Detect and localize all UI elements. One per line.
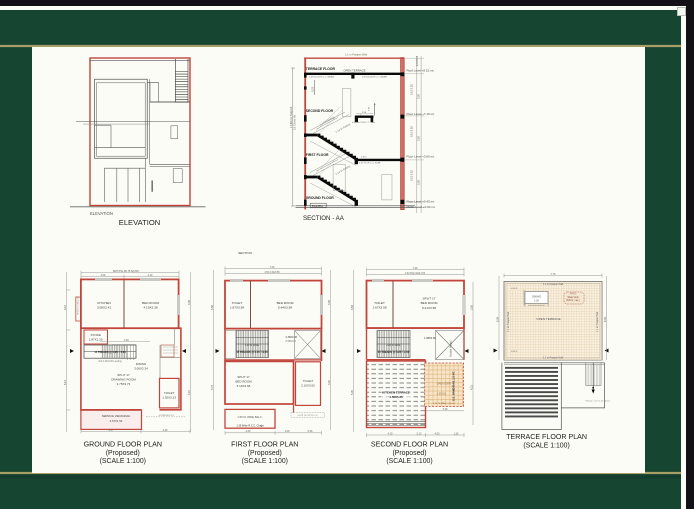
svg-text:SERVICE VERANDAH: SERVICE VERANDAH: [102, 414, 131, 418]
svg-text:1.14 M Railing: 1.14 M Railing: [335, 164, 352, 176]
svg-text:17.88 mt. Total Ht.: 17.88 mt. Total Ht.: [289, 106, 293, 128]
svg-text:4.19X3.38: 4.19X3.38: [143, 306, 157, 310]
svg-text:BED ROOM: BED ROOM: [142, 301, 159, 305]
svg-text:Floor Level +0.45 mt.: Floor Level +0.45 mt.: [407, 199, 435, 203]
svg-text:(Proposed): (Proposed): [392, 450, 426, 457]
svg-text:1.20: 1.20: [534, 299, 539, 302]
svg-text:1.1 m Parapet Wall: 1.1 m Parapet Wall: [543, 283, 564, 286]
svg-text:4.20: 4.20: [246, 430, 251, 433]
svg-text:(SCALE 1:100): (SCALE 1:100): [242, 458, 288, 465]
svg-text:3.38: 3.38: [188, 300, 191, 305]
svg-text:Water tank: Water tank: [567, 296, 579, 299]
svg-text:ELEVATION: ELEVATION: [119, 218, 161, 227]
svg-text:SITOUT 2.44x1.20: SITOUT 2.44x1.20: [78, 296, 80, 315]
svg-text:(Proposed): (Proposed): [248, 450, 282, 457]
svg-text:3.28: 3.28: [443, 408, 448, 411]
svg-text:1.14 M Railing: 1.14 M Railing: [319, 115, 336, 127]
svg-text:S.S. HAND RAIL 1.0 HT.: S.S. HAND RAIL 1.0 HT.: [452, 371, 456, 401]
svg-text:1.35 Wide R.C.C. Chajja: 1.35 Wide R.C.C. Chajja: [236, 425, 264, 428]
svg-text:SWHS: SWHS: [532, 294, 541, 298]
svg-text:1.87X3.58: 1.87X3.58: [230, 306, 244, 310]
svg-text:5.44X3.58: 5.44X3.58: [278, 306, 292, 310]
svg-text:TOILET: TOILET: [164, 391, 175, 395]
svg-text:GROUND FLOOR: GROUND FLOOR: [306, 196, 334, 200]
svg-text:FIRST FLOOR: FIRST FLOOR: [306, 153, 329, 157]
svg-text:3.75X3.73: 3.75X3.73: [117, 382, 131, 386]
svg-text:3.58: 3.58: [351, 305, 354, 310]
svg-text:4.19: 4.19: [148, 274, 153, 277]
svg-text:BED ROOM: BED ROOM: [277, 301, 294, 305]
svg-text:OPEN TERRACE: OPEN TERRACE: [344, 69, 366, 73]
svg-text:Roof Level +8.51 mt.: Roof Level +8.51 mt.: [407, 68, 435, 72]
svg-text:0.075 TK. UPTO 1.0: 0.075 TK. UPTO 1.0: [298, 415, 319, 417]
svg-text:3.08X2.41: 3.08X2.41: [97, 306, 111, 310]
svg-text:2.38X0.68: 2.38X0.68: [286, 336, 298, 339]
svg-text:GROUND FLOOR PLAN: GROUND FLOOR PLAN: [84, 440, 162, 448]
svg-text:4.19: 4.19: [388, 432, 393, 435]
svg-text:0.30 X: 0.30 X: [511, 351, 518, 353]
svg-text:1.08: 1.08: [285, 430, 290, 433]
svg-text:SECTION: SECTION: [238, 251, 252, 255]
svg-text:TOILET: TOILET: [374, 301, 385, 305]
svg-text:(Proposed): (Proposed): [106, 450, 140, 457]
svg-text:0.15 3.35: 0.15 3.35: [410, 84, 414, 95]
svg-text:3.00X2.34: 3.00X2.34: [134, 367, 148, 371]
svg-text:Plinth Level +0.00 mt.: Plinth Level +0.00 mt.: [407, 205, 436, 209]
svg-text:1.38X0.68: 1.38X0.68: [424, 336, 436, 340]
svg-text:8.34: 8.34: [496, 317, 499, 322]
svg-text:0.30 X: 0.30 X: [511, 288, 518, 290]
svg-text:3.08: 3.08: [101, 274, 106, 277]
svg-text:1.67X3.58: 1.67X3.58: [372, 306, 386, 310]
svg-text:7.26: 7.26: [270, 266, 275, 269]
svg-text:(SCALE 1:100): (SCALE 1:100): [523, 443, 569, 450]
svg-text:5.16X3.58: 5.16X3.58: [237, 384, 251, 388]
svg-text:3.58: 3.58: [328, 300, 331, 305]
svg-text:FIRST FLOOR PLAN: FIRST FLOOR PLAN: [231, 440, 298, 448]
svg-text:SECOND FLOOR PLAN: SECOND FLOOR PLAN: [371, 440, 448, 448]
svg-text:4.50: 4.50: [435, 432, 440, 435]
svg-text:0.23: 0.23: [310, 86, 314, 92]
svg-text:(SCALE 1:100): (SCALE 1:100): [100, 458, 146, 465]
svg-text:0.90: 0.90: [368, 106, 370, 111]
svg-text:TERRACE FLOOR: TERRACE FLOOR: [306, 67, 336, 71]
svg-text:4.50X5.35: 4.50X5.35: [389, 395, 403, 399]
svg-text:0.075: 0.075: [361, 156, 367, 158]
svg-text:SECTION - AA: SECTION - AA: [303, 215, 345, 222]
svg-text:4.31: 4.31: [470, 385, 473, 390]
svg-text:SMT PSL 96.75 SQ.MT.: SMT PSL 96.75 SQ.MT.: [113, 270, 140, 273]
svg-text:OPEN TERRACE: OPEN TERRACE: [536, 317, 560, 321]
svg-text:15 TREADS @ 0.25 = 2.60: 15 TREADS @ 0.25 = 2.60: [94, 350, 126, 354]
svg-text:3.50: 3.50: [417, 135, 421, 141]
svg-text:0.15 3.35: 0.15 3.35: [410, 170, 414, 181]
svg-text:7.75: 7.75: [550, 272, 556, 276]
svg-text:1.35: 1.35: [454, 432, 459, 435]
svg-text:1.92X2.13: 1.92X2.13: [162, 396, 176, 400]
svg-text:1.50 M. WIDE BALC.: 1.50 M. WIDE BALC.: [237, 415, 262, 419]
svg-text:0.10 TK WALL 1.00 HT: 0.10 TK WALL 1.00 HT: [433, 402, 456, 405]
svg-text:SPLIT 17: SPLIT 17: [117, 373, 130, 377]
svg-text:0.30 Prkp Wall 4.56: 0.30 Prkp Wall 4.56: [405, 272, 426, 275]
svg-text:4.49: 4.49: [163, 429, 168, 432]
svg-text:3.50: 3.50: [417, 93, 421, 99]
svg-text:5.73: 5.73: [211, 385, 214, 390]
svg-text:4.57: 4.57: [109, 429, 114, 432]
svg-text:2nd 0.60x2.60 Landing: 2nd 0.60x2.60 Landing: [98, 361, 122, 363]
svg-text:DINING: DINING: [136, 362, 147, 366]
svg-text:6.13: 6.13: [64, 380, 67, 385]
svg-text:3.58: 3.58: [211, 305, 214, 310]
svg-text:5.35: 5.35: [351, 390, 354, 395]
svg-text:1.20 LVL: 1.20 LVL: [437, 392, 447, 395]
svg-text:0.96: 0.96: [308, 430, 313, 433]
svg-text:3.00: 3.00: [328, 380, 331, 385]
svg-text:0.38X2.07: 0.38X2.07: [286, 341, 297, 343]
svg-text:2.20 M WIDE: 2.20 M WIDE: [386, 344, 401, 347]
svg-text:Mumty 2.1m×2.4m Above: Mumty 2.1m×2.4m Above: [586, 399, 612, 402]
svg-text:0.23: 0.23: [417, 432, 422, 435]
svg-text:3.50: 3.50: [417, 179, 421, 185]
svg-text:(SCALE 1:100): (SCALE 1:100): [386, 458, 432, 465]
svg-text:Floor Level +3.66 mt.: Floor Level +3.66 mt.: [407, 155, 435, 159]
svg-text:4.13: 4.13: [64, 305, 67, 310]
svg-text:KITCHEN: KITCHEN: [97, 301, 111, 305]
svg-text:4.56 0.30x3.58: 4.56 0.30x3.58: [264, 272, 280, 274]
svg-text:13.73 mt. Ht.: 13.73 mt. Ht.: [292, 114, 296, 130]
svg-text:8.34: 8.34: [604, 317, 607, 322]
svg-text:SPLIT 17: SPLIT 17: [423, 297, 436, 301]
svg-text:KITCHEN TERRACE: KITCHEN TERRACE: [382, 390, 410, 394]
svg-text:5.15: 5.15: [188, 390, 191, 395]
svg-text:2.20 M WIDE: 2.20 M WIDE: [245, 344, 260, 347]
svg-text:TOILET: TOILET: [303, 379, 314, 383]
svg-text:BED ROOM: BED ROOM: [235, 380, 252, 384]
svg-text:SECOND FLOOR: SECOND FLOOR: [306, 109, 334, 113]
svg-text:4.57X1.52: 4.57X1.52: [110, 419, 123, 423]
svg-text:0.15 3.35: 0.15 3.35: [410, 126, 414, 137]
svg-text:0.075x0.30 R.C.C. BEAM: 0.075x0.30 R.C.C. BEAM: [362, 76, 387, 79]
svg-text:1.1 m Parapet Wall: 1.1 m Parapet Wall: [345, 53, 367, 57]
svg-text:7.26: 7.26: [413, 267, 418, 270]
svg-text:1.1 m Parapet Wall: 1.1 m Parapet Wall: [507, 311, 510, 332]
svg-text:TOILET: TOILET: [232, 301, 243, 305]
svg-text:1.14 M Railing: 1.14 M Railing: [335, 122, 352, 134]
svg-text:1.87X1.20: 1.87X1.20: [89, 338, 103, 342]
svg-text:TERRACE FLOOR PLAN: TERRACE FLOOR PLAN: [506, 433, 587, 441]
svg-text:Floor Level +7.16 mt.: Floor Level +7.16 mt.: [407, 112, 435, 116]
svg-text:P.V.C: P.V.C: [570, 294, 576, 296]
svg-text:0.075x0.30 R.C.C. BEAM: 0.075x0.30 R.C.C. BEAM: [309, 76, 334, 79]
svg-text:0.10 Th. R.C.C. SLAB: 0.10 Th. R.C.C. SLAB: [359, 161, 381, 164]
svg-text:1.1 m Parapet Wall: 1.1 m Parapet Wall: [543, 356, 564, 359]
svg-text:BED ROOM: BED ROOM: [421, 301, 438, 305]
svg-text:5.41X3.58: 5.41X3.58: [422, 306, 436, 310]
svg-text:DRAWING ROOM: DRAWING ROOM: [111, 378, 136, 382]
svg-text:0.10 0.10: 0.10 0.10: [416, 55, 419, 66]
svg-text:3.58: 3.58: [470, 305, 473, 310]
svg-text:OPEN TERR.: OPEN TERR.: [437, 383, 452, 386]
svg-text:15 TREADS @ 0.25 = 2.60: 15 TREADS @ 0.25 = 2.60: [236, 350, 268, 354]
svg-text:2.10X3.00: 2.10X3.00: [301, 384, 315, 388]
svg-text:1.1 m Parapet Wall: 1.1 m Parapet Wall: [596, 311, 599, 332]
svg-text:0.075x0.23 R.C.C. Slab: 0.075x0.23 R.C.C. Slab: [352, 122, 376, 124]
svg-text:ELEVATION: ELEVATION: [90, 211, 113, 216]
svg-text:(500 ltr. cap.): (500 ltr. cap.): [566, 299, 580, 302]
svg-text:STORE: STORE: [91, 333, 101, 337]
svg-text:15 TREADS @ 0.25 = 2.60: 15 TREADS @ 0.25 = 2.60: [378, 350, 410, 354]
svg-text:SPLIT 17: SPLIT 17: [237, 375, 250, 379]
svg-text:PLINTH: PLINTH: [312, 204, 323, 208]
svg-text:Double Height: Double Height: [449, 340, 453, 357]
svg-text:2.60: 2.60: [124, 339, 129, 342]
svg-text:4.57X0.30 2.13: 4.57X0.30 2.13: [159, 415, 175, 417]
